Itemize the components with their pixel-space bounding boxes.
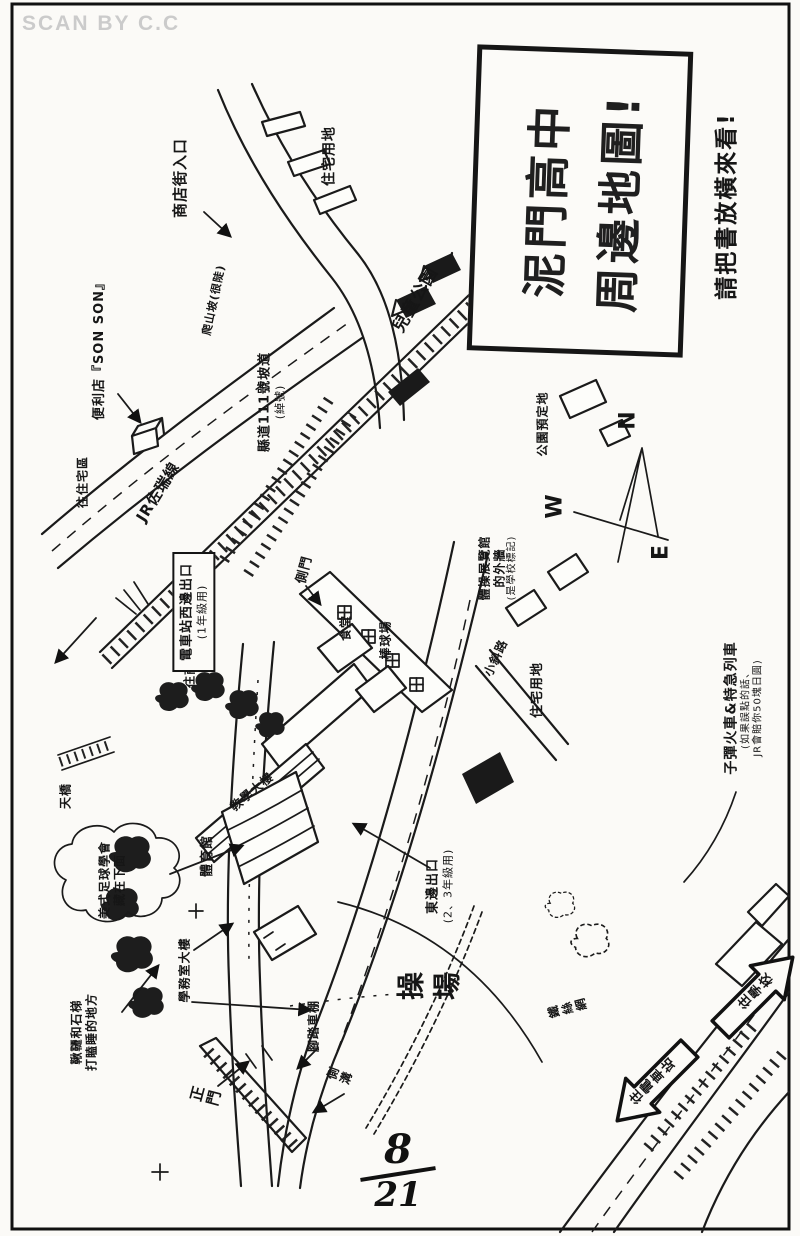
gym-wall-note-2: 的外牆 (492, 535, 507, 600)
gymnasium-shape (222, 772, 318, 884)
east-exit-note: (2、3年級用) (441, 849, 454, 924)
compass-north: N (616, 410, 643, 429)
direction-arrows (600, 940, 800, 1137)
park-planned-label: 公園預定地 (536, 391, 551, 456)
football-club-note-label: 美式足球學會 藏在下面 (97, 841, 126, 919)
playground-label: 操場 (396, 968, 468, 1008)
admin-building-shape (254, 906, 316, 960)
map-title-line2: 周邊地圖! (580, 91, 653, 314)
wire-fence-line (374, 912, 482, 1134)
gymnasium-label: 體育館 (200, 835, 216, 877)
cafeteria-label: 食堂 (339, 615, 354, 641)
to-residential-label: 往住宅區 (76, 456, 91, 508)
road-111-label: 縣道111號坡道 (綽號) (257, 352, 286, 452)
station-east-building (462, 752, 514, 804)
baseball-field-label: 棒球場 (379, 620, 394, 659)
gym-wall-note-3: (是學校標記) (507, 535, 519, 600)
wire-fence-line (366, 906, 474, 1128)
swings-note-2: 打瞌睡的地方 (84, 993, 99, 1071)
playground-area (290, 902, 542, 1134)
admin-building-label: 學務室大樓 (178, 937, 193, 1002)
footbridge-shape (58, 737, 114, 770)
main-gate-posts (246, 1046, 272, 1068)
scan-watermark: SCAN BY C.C (22, 12, 180, 36)
football-club-note-2: 藏在下面 (112, 841, 127, 919)
train (388, 368, 430, 406)
map-title-box: 泥門高中 周邊地圖! (467, 44, 694, 357)
map-title-line1: 泥門高中 (508, 101, 580, 299)
page-number-bottom: 21 (350, 1178, 446, 1212)
road-111-text: 縣道111號坡道 (257, 352, 273, 452)
football-club-note-1: 美式足球學會 (97, 841, 112, 919)
station-west-exit-label: 電車站西邊出口 (1年級用) (172, 552, 215, 672)
shop-street-entrance-label: 商店街入口 (171, 138, 189, 218)
swings-note-1: 鞦韆和石梯 (69, 993, 84, 1071)
train-note-label: 子彈火車&特急列車 (如果誤點的話、 JR會賠你50塊日圓) (723, 641, 764, 774)
road-111-note: (綽號) (273, 352, 286, 452)
train-note-sub1: (如果誤點的話、 (740, 641, 752, 774)
sonson-store (132, 418, 164, 454)
residential-top-label: 住宅用地 (321, 126, 338, 186)
page-number-top: 8 (350, 1130, 446, 1170)
page-number: 8 21 (350, 1130, 446, 1212)
rotate-book-note: 請把書放橫來看! (713, 112, 741, 300)
house (748, 884, 789, 926)
footbridge-label: 天橋 (59, 783, 74, 809)
station-west-exit-note: (1年級用) (195, 563, 208, 661)
east-exit-text: 東邊出口 (425, 849, 441, 924)
gym-wall-note-label: 體操展覽館 的外牆 (是學校標記) (477, 535, 518, 600)
swings-note-label: 鞦韆和石梯 打瞌睡的地方 (69, 993, 98, 1071)
compass-east: E (649, 544, 676, 560)
train-note-main: 子彈火車&特急列車 (723, 641, 740, 774)
gym-wall-note-1: 體操展覽館 (477, 535, 492, 600)
scanned-page: SCAN BY C.C 泥門高中 周邊地圖! 請把書放橫來看! N W E 商店… (0, 0, 800, 1236)
east-exit-label: 東邊出口 (2、3年級用) (425, 849, 454, 924)
residential-right-label: 住宅用地 (530, 662, 546, 718)
shopping-street (204, 84, 404, 428)
compass-west: W (543, 493, 570, 518)
train-note-sub2: JR會賠你50塊日圓) (753, 641, 765, 774)
bike-shed-label: 腳踏車棚 (307, 1000, 322, 1052)
convenience-store-label: 便利店『SON SON』 (92, 276, 108, 420)
station-west-exit-text: 電車站西邊出口 (179, 563, 195, 661)
